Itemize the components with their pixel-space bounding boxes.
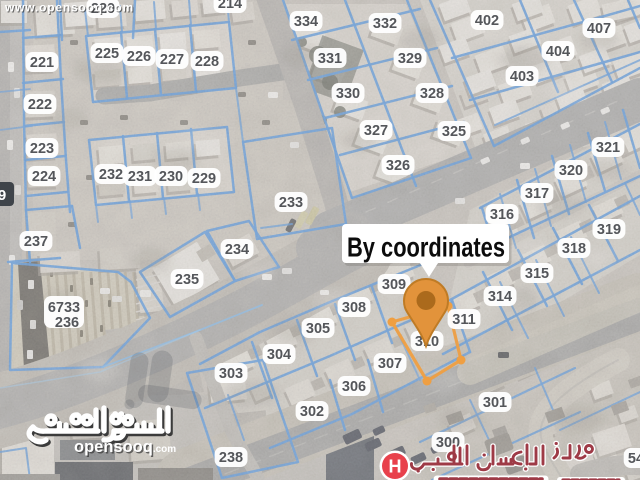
svg-text:232: 232: [99, 167, 123, 183]
svg-text:235: 235: [175, 272, 199, 288]
svg-text:311: 311: [452, 312, 475, 328]
svg-text:315: 315: [525, 266, 549, 282]
svg-text:228: 228: [195, 54, 219, 70]
svg-text:334: 334: [294, 14, 318, 30]
svg-text:227: 227: [160, 52, 184, 68]
svg-text:305: 305: [306, 321, 330, 337]
svg-text:332: 332: [373, 16, 397, 32]
svg-text:327: 327: [364, 123, 388, 139]
svg-text:www.opensooq.com: www.opensooq.com: [4, 1, 134, 15]
svg-text:407: 407: [587, 21, 611, 37]
svg-text:54: 54: [628, 451, 640, 467]
svg-text:325: 325: [442, 124, 466, 140]
svg-text:302: 302: [300, 404, 324, 420]
svg-text:223: 223: [30, 141, 54, 157]
svg-text:319: 319: [597, 222, 621, 238]
svg-text:329: 329: [398, 51, 422, 67]
svg-text:225: 225: [95, 46, 119, 62]
svg-text:309: 309: [382, 277, 406, 293]
svg-text:331: 331: [318, 51, 342, 67]
svg-text:307: 307: [378, 356, 402, 372]
svg-text:226: 226: [127, 49, 151, 65]
svg-text:403: 403: [510, 69, 534, 85]
svg-text:306: 306: [342, 379, 366, 395]
svg-text:330: 330: [336, 86, 360, 102]
svg-text:317: 317: [525, 186, 549, 202]
svg-text:301: 301: [483, 395, 507, 411]
svg-text:222: 222: [28, 97, 52, 113]
svg-text:303: 303: [219, 366, 243, 382]
svg-text:304: 304: [267, 347, 291, 363]
svg-text:9: 9: [0, 187, 6, 204]
svg-text:404: 404: [546, 44, 570, 60]
svg-text:224: 224: [32, 169, 56, 185]
svg-text:237: 237: [24, 234, 48, 250]
svg-text:316: 316: [490, 207, 514, 223]
svg-text:230: 230: [159, 169, 183, 185]
svg-text:402: 402: [475, 13, 499, 29]
svg-text:318: 318: [562, 241, 586, 257]
svg-text:314: 314: [488, 289, 512, 305]
svg-text:236: 236: [55, 315, 79, 331]
svg-text:308: 308: [342, 300, 366, 316]
svg-text:By coordinates: By coordinates: [347, 232, 505, 263]
svg-text:238: 238: [219, 450, 243, 466]
svg-text:234: 234: [225, 242, 249, 258]
svg-text:221: 221: [30, 55, 54, 71]
svg-text:231: 231: [128, 169, 152, 185]
svg-text:H: H: [389, 457, 402, 477]
svg-text:233: 233: [279, 195, 303, 211]
svg-text:214: 214: [218, 0, 242, 12]
svg-text:321: 321: [596, 140, 620, 156]
svg-text:326: 326: [386, 158, 410, 174]
svg-text:6733: 6733: [48, 300, 80, 316]
svg-text:320: 320: [559, 163, 583, 179]
svg-text:229: 229: [192, 171, 216, 187]
svg-text:328: 328: [420, 86, 444, 102]
